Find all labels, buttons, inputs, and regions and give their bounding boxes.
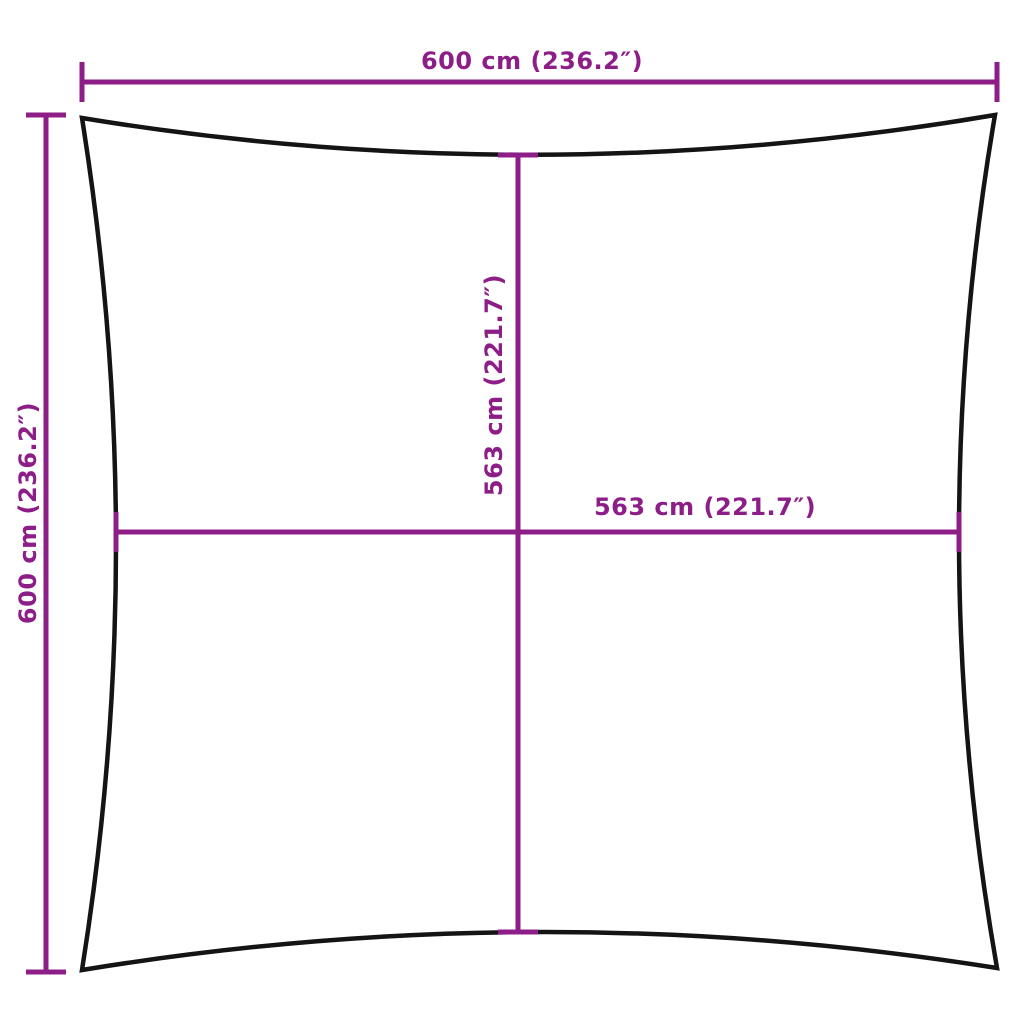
center-horizontal-dimension-line (116, 512, 959, 552)
shade-sail-outline (82, 115, 997, 970)
diagram-canvas (0, 0, 1024, 1024)
left-height-label: 600 cm (236.2″) (16, 402, 40, 624)
center-height-label: 563 cm (221.7″) (482, 274, 506, 496)
center-vertical-dimension-line (498, 155, 538, 932)
top-width-label: 600 cm (236.2″) (421, 49, 643, 73)
center-width-label: 563 cm (221.7″) (594, 495, 816, 519)
dimension-diagram: 600 cm (236.2″) 600 cm (236.2″) 563 cm (… (0, 0, 1024, 1024)
